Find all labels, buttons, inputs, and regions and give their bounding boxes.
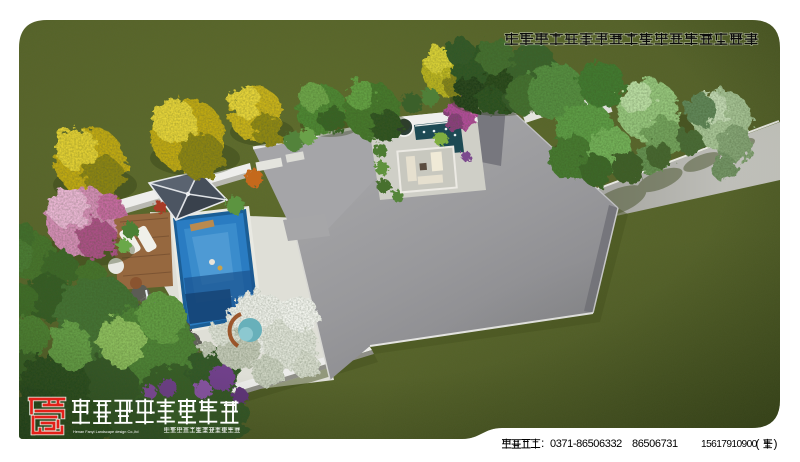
svg-text:15617910900: 15617910900	[701, 439, 758, 450]
svg-text:0371-86506332: 0371-86506332	[550, 438, 622, 450]
svg-text::: :	[541, 436, 544, 450]
svg-text:86506731: 86506731	[632, 438, 678, 450]
svg-text:Henan Fanyi Landscape design C: Henan Fanyi Landscape design Co.,ltd	[73, 430, 138, 434]
svg-text:): )	[774, 437, 778, 451]
svg-text:(: (	[756, 437, 760, 451]
